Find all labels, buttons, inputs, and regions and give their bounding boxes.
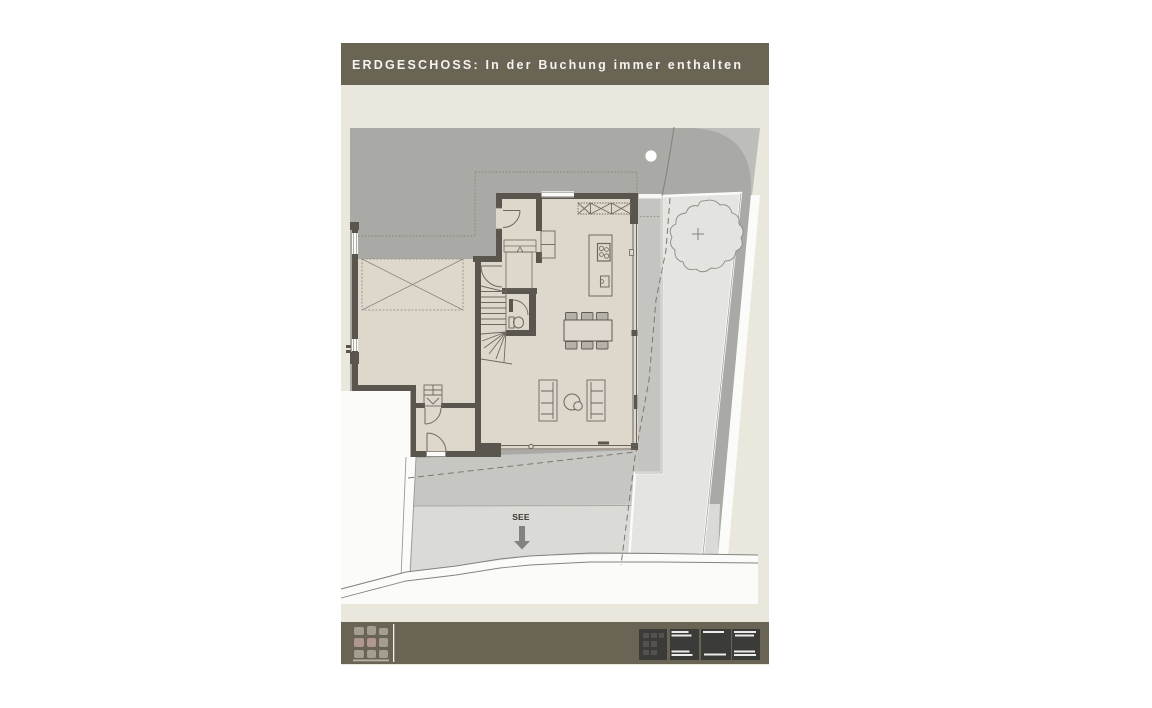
svg-text:ERDGESCHOSS: In der Buchung im: ERDGESCHOSS: In der Buchung immer enthal… bbox=[352, 58, 743, 72]
svg-text:SEE: SEE bbox=[512, 512, 530, 522]
